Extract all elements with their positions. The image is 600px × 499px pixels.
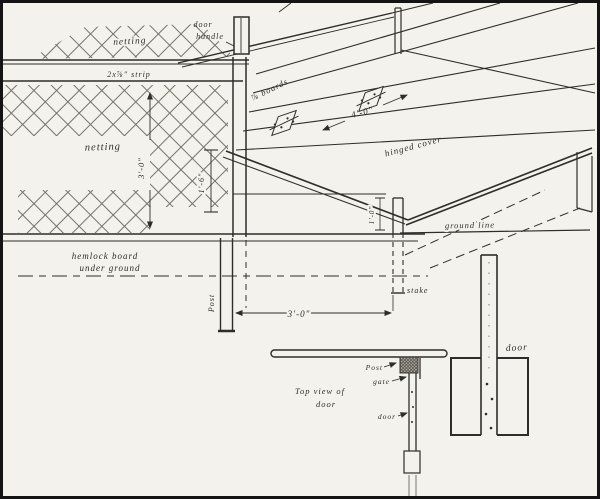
label-hemlock-2: under ground [80, 263, 141, 273]
label-post-spacing: 3'-0" [287, 309, 311, 319]
label-door-handle-1: door [193, 20, 212, 29]
label-netting-left: netting [85, 141, 122, 153]
label-detail-door: door [506, 343, 528, 354]
label-post: Post [207, 294, 216, 313]
label-board-height: 1'-6" [197, 173, 206, 194]
label-strip: 2x⅞" strip [107, 70, 151, 79]
netting-mesh [3, 24, 233, 233]
paper-background [0, 0, 600, 499]
label-netting-top: netting [113, 36, 147, 48]
diagram-page: netting netting door handle 2x⅞" strip ⅞… [0, 0, 600, 499]
label-tv-door: door [378, 412, 396, 421]
label-hemlock-1: hemlock board [72, 251, 138, 261]
label-door-handle-2: handle [196, 32, 224, 41]
top-view-post-square [400, 357, 418, 373]
label-stake: stake [407, 286, 428, 295]
label-top-view-2: door [316, 399, 336, 409]
label-netting-height: 3'-0" [136, 157, 146, 180]
label-stake-depth: 1'-0" [368, 206, 376, 225]
label-ground-line: ground line [445, 220, 495, 231]
label-tv-post: Post [365, 363, 383, 372]
construction-diagram: netting netting door handle 2x⅞" strip ⅞… [0, 0, 600, 499]
label-tv-gate: gate [373, 377, 390, 386]
label-top-view-1: Top view of [295, 386, 346, 396]
